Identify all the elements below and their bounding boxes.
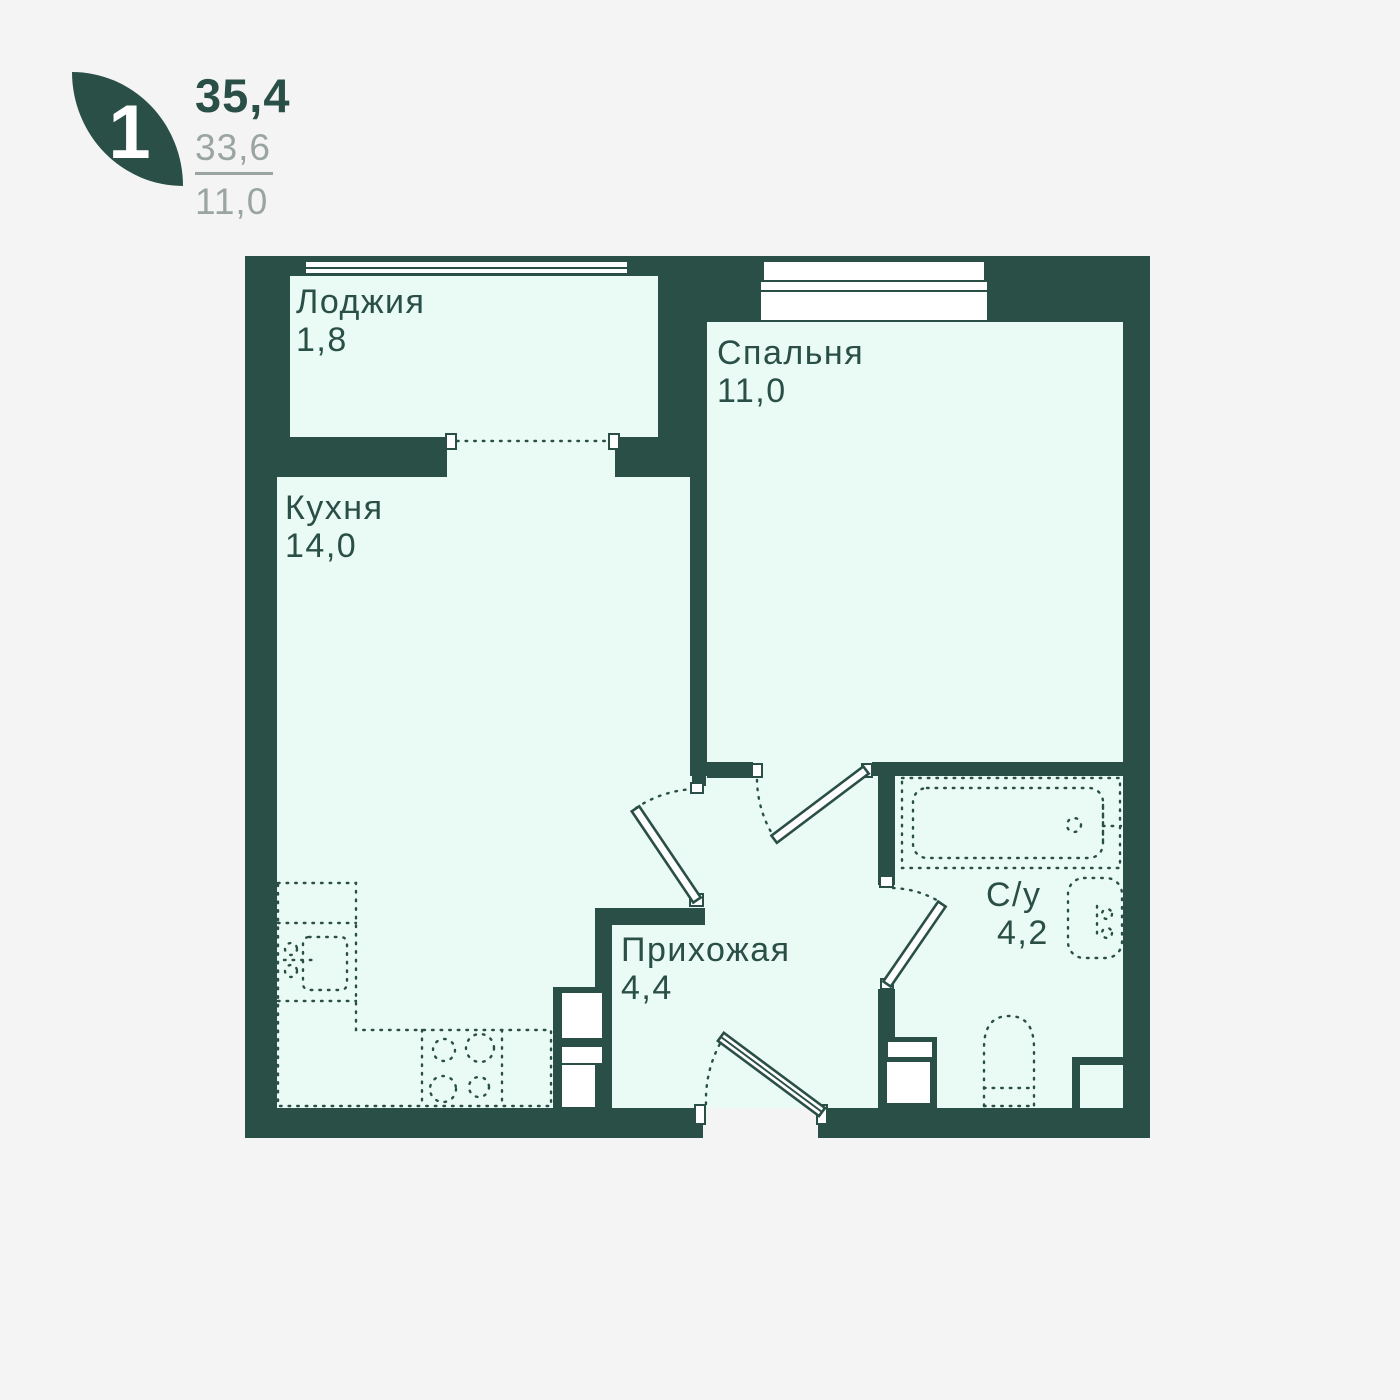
wall-hallway-kitchen-stub — [595, 908, 705, 925]
bedroom-window — [760, 261, 988, 321]
wall-bedroom-south-right — [872, 762, 1123, 776]
wall-bedroom-south-left — [707, 762, 753, 778]
room-area: 1,8 — [296, 321, 348, 359]
loggia-passage — [447, 437, 615, 478]
door-jamb — [695, 1105, 705, 1124]
floorplan-card: 1 35,4 33,6 11,0 — [0, 0, 1400, 1400]
corner-chase-opening — [1080, 1065, 1123, 1108]
door-jamb — [752, 764, 762, 777]
window-sill — [763, 261, 985, 281]
entrance-opening — [703, 1108, 818, 1140]
kitchen-duct-vent — [562, 1047, 602, 1063]
bedroom-door-opening — [762, 762, 862, 778]
room-name: Спальня — [717, 334, 864, 372]
door-jamb — [880, 876, 893, 887]
loggia-window — [305, 261, 628, 274]
bathroom-duct-shaft — [878, 1037, 937, 1108]
room-name: С/у — [986, 876, 1042, 914]
room-name: Лоджия — [296, 283, 425, 321]
room-area: 4,2 — [997, 914, 1049, 952]
room-name: Прихожая — [621, 931, 791, 969]
bathroom-duct-vent — [888, 1042, 932, 1057]
window-frame — [760, 291, 988, 321]
wall-hallway-bathroom-lower — [878, 989, 895, 1037]
floorplan-drawing: Лоджия 1,8 Спальня 11,0 Кухня 14,0 Прихо… — [0, 0, 1400, 1400]
door-jamb — [446, 434, 456, 449]
door-jamb — [609, 434, 619, 449]
bathroom-duct-vent — [887, 1062, 930, 1103]
door-jamb — [691, 783, 703, 793]
kitchen-duct-vent — [562, 1065, 595, 1107]
bathroom-corner-chase — [1072, 1057, 1123, 1108]
wall-hallway-bathroom-upper — [878, 762, 895, 885]
kitchen-duct-vent — [562, 993, 602, 1038]
room-name: Кухня — [285, 489, 384, 527]
window-frame — [760, 281, 988, 291]
kitchen-duct-shaft — [553, 987, 612, 1108]
wall-kitchen-duct-neck — [595, 925, 612, 987]
room-area: 14,0 — [285, 527, 357, 565]
room-area: 4,4 — [621, 969, 673, 1007]
room-area: 11,0 — [717, 372, 787, 410]
